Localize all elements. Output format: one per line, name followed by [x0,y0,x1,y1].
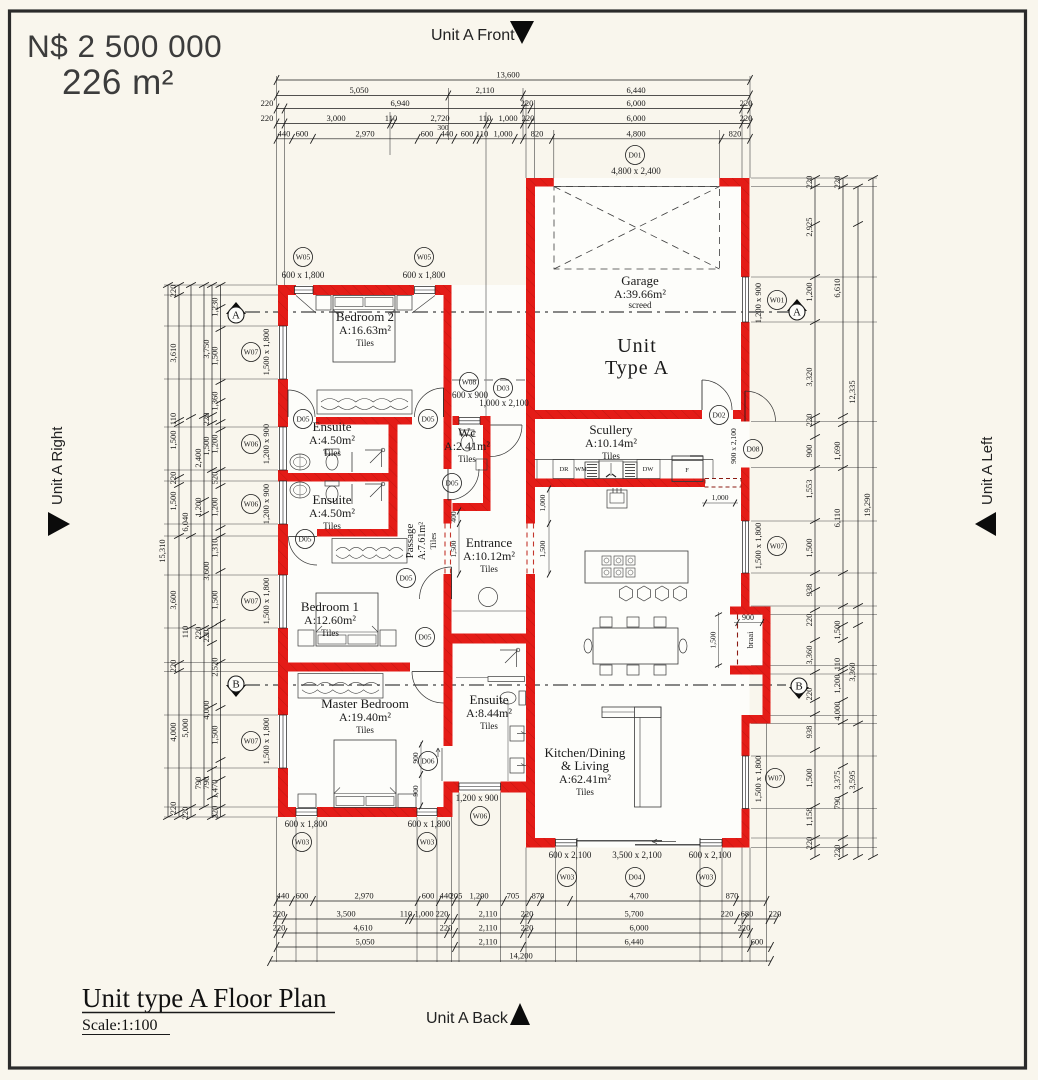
svg-text:600: 600 [296,891,309,901]
svg-text:3,610: 3,610 [168,343,178,362]
svg-text:3,600: 3,600 [201,561,211,580]
svg-text:6,110: 6,110 [832,509,842,528]
svg-text:12,335: 12,335 [847,380,857,403]
svg-text:1,500: 1,500 [449,540,458,557]
svg-text:Tiles: Tiles [480,564,498,574]
svg-text:1,500: 1,500 [538,540,547,557]
svg-text:W06: W06 [244,500,259,509]
svg-text:Tiles: Tiles [321,628,339,638]
svg-text:1,500 x 1,800: 1,500 x 1,800 [753,523,763,570]
svg-text:600 x 1,800: 600 x 1,800 [408,819,451,829]
svg-text:400: 400 [449,511,458,523]
svg-text:1,500 x 1,800: 1,500 x 1,800 [261,329,271,376]
svg-text:870: 870 [726,891,739,901]
svg-text:600 x 1,800: 600 x 1,800 [282,270,325,280]
svg-text:1,553: 1,553 [804,479,814,498]
svg-text:screed: screed [629,300,652,310]
svg-text:Tiles: Tiles [428,533,438,550]
svg-text:A:10.12m²: A:10.12m² [463,549,515,563]
svg-text:Bedroom 2: Bedroom 2 [336,309,394,324]
svg-text:D05: D05 [422,415,435,424]
svg-text:D05: D05 [446,479,459,488]
svg-text:A:62.41m²: A:62.41m² [559,772,611,786]
svg-text:Tiles: Tiles [480,721,498,731]
svg-text:820: 820 [729,128,742,138]
svg-text:& Living: & Living [561,758,610,773]
svg-text:1,500: 1,500 [210,725,220,744]
svg-text:1,200: 1,200 [832,674,842,693]
svg-text:2,110: 2,110 [479,923,498,933]
svg-text:1,230: 1,230 [210,297,220,316]
svg-text:1,000: 1,000 [498,113,517,123]
svg-text:110: 110 [476,128,488,138]
svg-text:220: 220 [210,806,220,819]
svg-text:D06: D06 [422,757,435,766]
svg-text:2,720: 2,720 [430,113,449,123]
svg-text:4,800: 4,800 [626,128,645,138]
svg-text:D08: D08 [747,445,760,454]
svg-text:Unit A Back: Unit A Back [426,1010,509,1027]
svg-text:D03: D03 [497,384,510,393]
svg-text:938: 938 [804,726,814,739]
svg-text:W01: W01 [770,296,785,305]
svg-text:6,940: 6,940 [390,98,409,108]
svg-text:1,500: 1,500 [804,768,814,787]
svg-text:1,200 x 900: 1,200 x 900 [456,793,499,803]
svg-text:Passage: Passage [404,523,416,558]
svg-text:W03: W03 [560,873,575,882]
svg-text:D05: D05 [419,633,432,642]
svg-text:1,200: 1,200 [193,497,203,516]
svg-text:6,610: 6,610 [832,278,842,297]
svg-text:900 x 2,100: 900 x 2,100 [729,428,738,464]
svg-text:Tiles: Tiles [602,451,620,461]
svg-text:Ensuite: Ensuite [470,692,509,707]
svg-text:220: 220 [521,923,534,933]
svg-text:1,200 x 900: 1,200 x 900 [753,283,763,323]
svg-text:226 m²: 226 m² [62,63,174,102]
svg-text:3,360: 3,360 [847,662,857,681]
svg-text:600: 600 [296,128,309,138]
svg-text:DR: DR [559,466,569,473]
svg-text:600 x 2,100: 600 x 2,100 [549,850,592,860]
svg-text:A:10.14m²: A:10.14m² [585,436,637,450]
svg-text:1,200: 1,200 [210,497,220,516]
svg-text:Entrance: Entrance [466,535,512,550]
svg-text:W06: W06 [473,812,488,821]
svg-text:A:4.50m²: A:4.50m² [309,506,355,520]
svg-text:220: 220 [804,614,814,627]
svg-text:D05: D05 [400,574,413,583]
svg-text:600: 600 [421,128,434,138]
svg-text:110: 110 [479,113,491,123]
svg-text:W05: W05 [296,253,311,262]
svg-text:440: 440 [278,128,291,138]
svg-text:1,500 x 1,800: 1,500 x 1,800 [753,756,763,803]
svg-text:1,360: 1,360 [210,391,220,410]
svg-text:220: 220 [201,630,211,643]
svg-text:220: 220 [832,845,842,858]
svg-text:2,970: 2,970 [355,128,374,138]
svg-text:Bedroom 1: Bedroom 1 [301,599,359,614]
svg-text:D01: D01 [629,151,642,160]
svg-text:6,000: 6,000 [629,923,648,933]
svg-text:1,500: 1,500 [168,430,178,449]
svg-text:110: 110 [168,413,178,425]
svg-text:Unit type A Floor Plan: Unit type A Floor Plan [82,983,327,1013]
svg-text:1,500 x 1,800: 1,500 x 1,800 [261,718,271,765]
svg-text:600 x 2,100: 600 x 2,100 [689,850,732,860]
svg-text:220: 220 [521,98,534,108]
svg-text:790: 790 [832,797,842,810]
svg-text:W08: W08 [462,378,477,387]
svg-text:Ensuite: Ensuite [313,419,352,434]
svg-text:600: 600 [422,891,435,901]
svg-text:B: B [232,679,239,691]
svg-text:820: 820 [531,128,544,138]
svg-text:A:39.66m²: A:39.66m² [614,287,666,301]
svg-text:6,000: 6,000 [626,98,645,108]
svg-text:A: A [232,310,240,322]
svg-text:220: 220 [273,909,286,919]
svg-text:2,110: 2,110 [476,85,495,95]
svg-text:1,200 x 900: 1,200 x 900 [261,424,271,464]
svg-text:D05: D05 [297,415,310,424]
svg-text:520: 520 [210,472,220,485]
svg-text:600: 600 [461,128,474,138]
svg-text:1,500: 1,500 [832,620,842,639]
svg-text:4,000: 4,000 [832,701,842,720]
svg-text:220: 220 [168,285,178,298]
svg-text:Garage: Garage [621,273,659,288]
svg-text:220: 220 [804,414,814,427]
svg-text:A:2.41m²: A:2.41m² [444,439,490,453]
svg-text:Wc: Wc [458,425,476,440]
svg-text:1,500: 1,500 [804,538,814,557]
svg-text:3,360: 3,360 [804,645,814,664]
svg-text:A:8.44m²: A:8.44m² [466,706,512,720]
svg-text:2,925: 2,925 [804,217,814,236]
svg-text:220: 220 [261,113,274,123]
svg-text:W03: W03 [420,838,435,847]
svg-text:220: 220 [738,923,751,933]
svg-text:220: 220 [721,909,734,919]
svg-text:W06: W06 [244,440,259,449]
svg-text:1,500 x 1,800: 1,500 x 1,800 [261,578,271,625]
svg-text:600 x 1,800: 600 x 1,800 [285,819,328,829]
svg-text:W07: W07 [768,774,783,783]
svg-text:705: 705 [507,891,520,901]
svg-text:110: 110 [832,658,842,670]
svg-text:4,800 x 2,400: 4,800 x 2,400 [611,166,661,176]
svg-text:14,200: 14,200 [509,951,532,961]
svg-text:13,600: 13,600 [496,70,519,80]
svg-text:A:12.60m²: A:12.60m² [304,613,356,627]
svg-text:W07: W07 [244,348,259,357]
svg-text:6,040: 6,040 [180,512,190,531]
svg-text:1,000 x 2,100: 1,000 x 2,100 [479,398,529,408]
svg-text:F: F [685,467,689,474]
svg-text:220: 220 [201,413,211,426]
svg-text:D04: D04 [629,873,642,882]
svg-text:1,500: 1,500 [709,631,718,648]
svg-text:1,000: 1,000 [414,909,433,919]
svg-text:Tiles: Tiles [356,725,374,735]
svg-text:110: 110 [400,909,412,919]
svg-text:2,110: 2,110 [479,909,498,919]
svg-text:900: 900 [804,445,814,458]
svg-text:W03: W03 [295,838,310,847]
svg-text:5,050: 5,050 [349,85,368,95]
svg-text:1,470: 1,470 [210,779,220,798]
svg-text:1,200: 1,200 [210,434,220,453]
svg-text:3,595: 3,595 [847,770,857,789]
svg-text:220: 220 [521,909,534,919]
svg-text:W05: W05 [417,253,432,262]
svg-text:1,200: 1,200 [469,891,488,901]
svg-text:19,290: 19,290 [862,493,872,516]
svg-text:4,610: 4,610 [353,923,372,933]
svg-text:DW: DW [643,466,655,473]
svg-text:A:16.63m²: A:16.63m² [339,323,391,337]
svg-text:Ensuite: Ensuite [313,492,352,507]
svg-text:Unit A Right: Unit A Right [49,426,66,505]
svg-text:220: 220 [804,176,814,189]
svg-text:15,310: 15,310 [157,539,167,562]
svg-text:6,440: 6,440 [624,937,643,947]
svg-text:205: 205 [450,891,463,901]
svg-text:1,000: 1,000 [712,493,729,502]
svg-text:600: 600 [751,937,764,947]
svg-text:3,375: 3,375 [832,770,842,789]
svg-text:220: 220 [180,807,190,820]
svg-text:1,690: 1,690 [832,441,842,460]
svg-text:W03: W03 [699,873,714,882]
svg-text:1,310: 1,310 [210,538,220,557]
svg-text:1,500: 1,500 [210,590,220,609]
svg-text:440: 440 [277,891,290,901]
svg-text:Unit A Front: Unit A Front [431,27,515,44]
svg-text:220: 220 [740,113,753,123]
svg-text:1,000: 1,000 [493,128,512,138]
svg-text:braai: braai [745,631,755,649]
svg-text:220: 220 [740,98,753,108]
svg-text:A: A [793,307,801,319]
svg-text:220: 220 [436,909,449,919]
svg-text:3,600: 3,600 [168,590,178,609]
svg-text:1,500: 1,500 [210,346,220,365]
svg-text:5,050: 5,050 [355,937,374,947]
svg-text:B: B [795,681,802,693]
svg-text:1,158: 1,158 [804,807,814,826]
svg-text:900: 900 [742,613,754,622]
svg-text:4,700: 4,700 [629,891,648,901]
svg-text:1,500: 1,500 [168,491,178,510]
svg-text:A:7.61m²: A:7.61m² [417,522,428,560]
svg-text:A:4.50m²: A:4.50m² [309,433,355,447]
svg-text:W07: W07 [244,597,259,606]
svg-text:680: 680 [741,909,754,919]
svg-text:Unit A Left: Unit A Left [979,436,996,505]
svg-text:Tiles: Tiles [356,338,374,348]
svg-text:Master Bedroom: Master Bedroom [321,696,409,711]
svg-text:220: 220 [168,660,178,673]
svg-text:W07: W07 [770,542,785,551]
svg-text:Unit: Unit [617,335,657,357]
svg-text:A:19.40m²: A:19.40m² [339,710,391,724]
svg-text:Tiles: Tiles [323,448,341,458]
svg-text:300: 300 [437,123,449,132]
svg-text:Tiles: Tiles [323,521,341,531]
svg-text:W07: W07 [244,737,259,746]
svg-text:220: 220 [522,113,535,123]
svg-text:2,520: 2,520 [210,657,220,676]
svg-text:3,500 x 2,100: 3,500 x 2,100 [612,850,662,860]
svg-text:220: 220 [168,802,178,815]
svg-text:220: 220 [769,909,782,919]
svg-text:220: 220 [168,472,178,485]
svg-text:110: 110 [385,113,397,123]
svg-text:938: 938 [804,584,814,597]
svg-text:N$ 2 500 000: N$ 2 500 000 [27,28,222,64]
svg-text:4,000: 4,000 [168,722,178,741]
svg-text:220: 220 [440,923,453,933]
svg-text:6,000: 6,000 [626,113,645,123]
svg-text:2,110: 2,110 [479,937,498,947]
svg-text:220: 220 [273,923,286,933]
svg-text:220: 220 [832,176,842,189]
svg-text:Tiles: Tiles [576,787,594,797]
svg-text:6,440: 6,440 [626,85,645,95]
svg-text:1,200 x 900: 1,200 x 900 [261,484,271,524]
svg-text:2,970: 2,970 [354,891,373,901]
svg-text:5,000: 5,000 [180,718,190,737]
svg-text:870: 870 [532,891,545,901]
svg-text:220: 220 [261,98,274,108]
svg-text:5,700: 5,700 [624,909,643,919]
svg-text:3,000: 3,000 [326,113,345,123]
svg-text:3,500: 3,500 [336,909,355,919]
svg-text:220: 220 [804,837,814,850]
svg-text:Scullery: Scullery [589,422,633,437]
svg-text:D02: D02 [713,411,726,420]
svg-text:Tiles: Tiles [458,454,476,464]
svg-text:1,000: 1,000 [538,494,547,511]
svg-text:D05: D05 [299,535,312,544]
svg-text:900: 900 [411,785,420,797]
svg-text:110: 110 [180,626,190,638]
svg-text:4,000: 4,000 [201,700,211,719]
svg-text:600 x 1,800: 600 x 1,800 [403,270,446,280]
svg-text:Scale:1:100: Scale:1:100 [82,1017,158,1034]
svg-text:3,320: 3,320 [804,367,814,386]
svg-text:1,200: 1,200 [804,282,814,301]
svg-text:Type A: Type A [605,357,669,379]
